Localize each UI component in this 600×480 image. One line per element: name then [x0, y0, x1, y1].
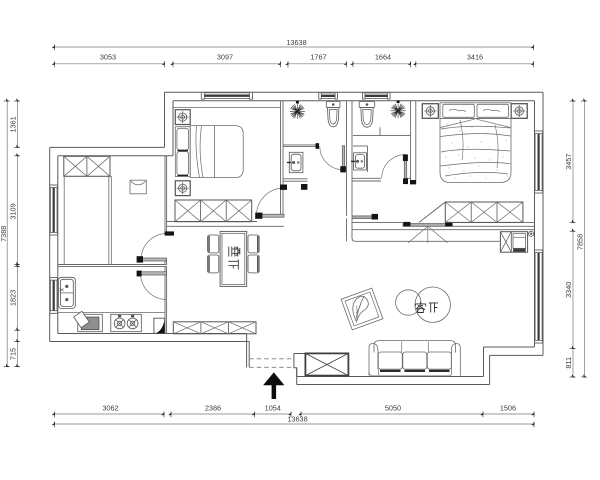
svg-text:1823: 1823	[9, 290, 18, 306]
svg-text:3062: 3062	[102, 404, 118, 413]
svg-text:3340: 3340	[564, 282, 573, 298]
svg-text:3109: 3109	[9, 203, 18, 219]
svg-text:715: 715	[9, 348, 18, 360]
svg-text:3416: 3416	[467, 52, 483, 61]
svg-text:1054: 1054	[265, 404, 281, 413]
svg-text:1767: 1767	[310, 52, 326, 61]
svg-text:1361: 1361	[9, 116, 18, 132]
svg-text:7388: 7388	[0, 226, 8, 242]
svg-text:13638: 13638	[287, 415, 307, 424]
svg-text:7858: 7858	[576, 234, 585, 250]
svg-text:3097: 3097	[217, 52, 233, 61]
svg-text:1506: 1506	[500, 404, 516, 413]
svg-text:5050: 5050	[385, 404, 401, 413]
svg-text:1664: 1664	[375, 52, 391, 61]
svg-text:811: 811	[564, 357, 573, 369]
svg-text:3053: 3053	[100, 52, 116, 61]
svg-text:13638: 13638	[286, 38, 306, 47]
svg-text:3457: 3457	[564, 154, 573, 170]
svg-text:2386: 2386	[205, 404, 221, 413]
